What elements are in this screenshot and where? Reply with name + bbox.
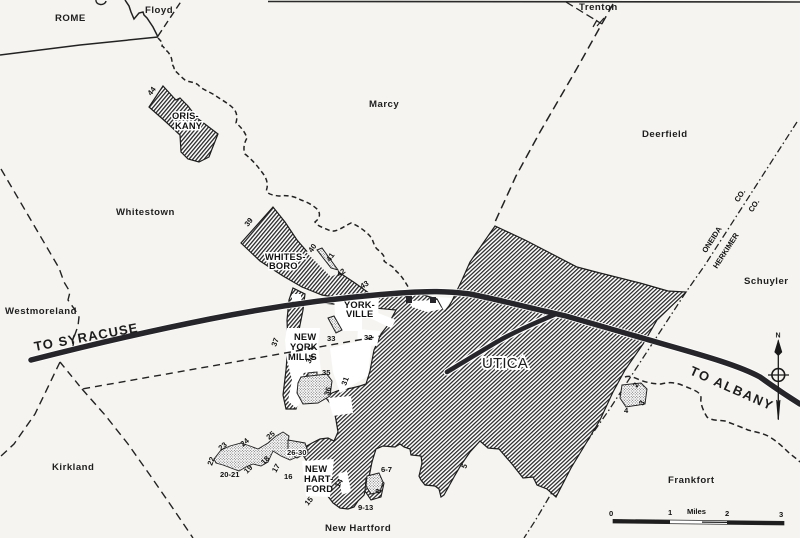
- svg-text:33: 33: [327, 334, 335, 343]
- svg-text:Trenton: Trenton: [579, 2, 618, 13]
- svg-text:NEW: NEW: [294, 332, 316, 342]
- svg-text:FORD: FORD: [306, 484, 333, 494]
- svg-text:YORK: YORK: [290, 342, 318, 352]
- svg-text:Floyd: Floyd: [145, 5, 173, 16]
- svg-text:Schuyler: Schuyler: [744, 276, 789, 287]
- svg-text:ROME: ROME: [55, 13, 86, 24]
- svg-text:UTICA: UTICA: [482, 355, 528, 372]
- svg-text:32: 32: [364, 333, 372, 342]
- svg-text:20-21: 20-21: [220, 470, 240, 479]
- svg-text:Kirkland: Kirkland: [52, 462, 94, 473]
- svg-text:KANY: KANY: [175, 121, 203, 131]
- svg-text:16: 16: [284, 472, 292, 481]
- svg-text:BORO: BORO: [269, 261, 298, 271]
- svg-text:Whitestown: Whitestown: [116, 207, 175, 218]
- svg-text:Deerfield: Deerfield: [642, 129, 688, 140]
- svg-text:N: N: [776, 333, 781, 340]
- svg-text:NEW: NEW: [305, 464, 327, 474]
- svg-text:2: 2: [725, 509, 729, 518]
- svg-text:3: 3: [779, 510, 783, 519]
- svg-text:Marcy: Marcy: [369, 99, 399, 110]
- svg-text:VILLE: VILLE: [346, 309, 373, 319]
- svg-text:ORIS-: ORIS-: [172, 111, 199, 121]
- svg-text:HART-: HART-: [304, 474, 333, 484]
- svg-text:Miles: Miles: [687, 507, 706, 516]
- svg-text:26-30: 26-30: [287, 448, 306, 457]
- svg-text:0: 0: [609, 509, 613, 518]
- svg-text:New Hartford: New Hartford: [325, 523, 391, 534]
- svg-text:Westmoreland: Westmoreland: [5, 306, 77, 317]
- svg-text:6-7: 6-7: [381, 465, 392, 474]
- svg-text:Frankfort: Frankfort: [668, 475, 715, 486]
- svg-text:9-13: 9-13: [358, 503, 373, 512]
- svg-text:35: 35: [322, 368, 331, 377]
